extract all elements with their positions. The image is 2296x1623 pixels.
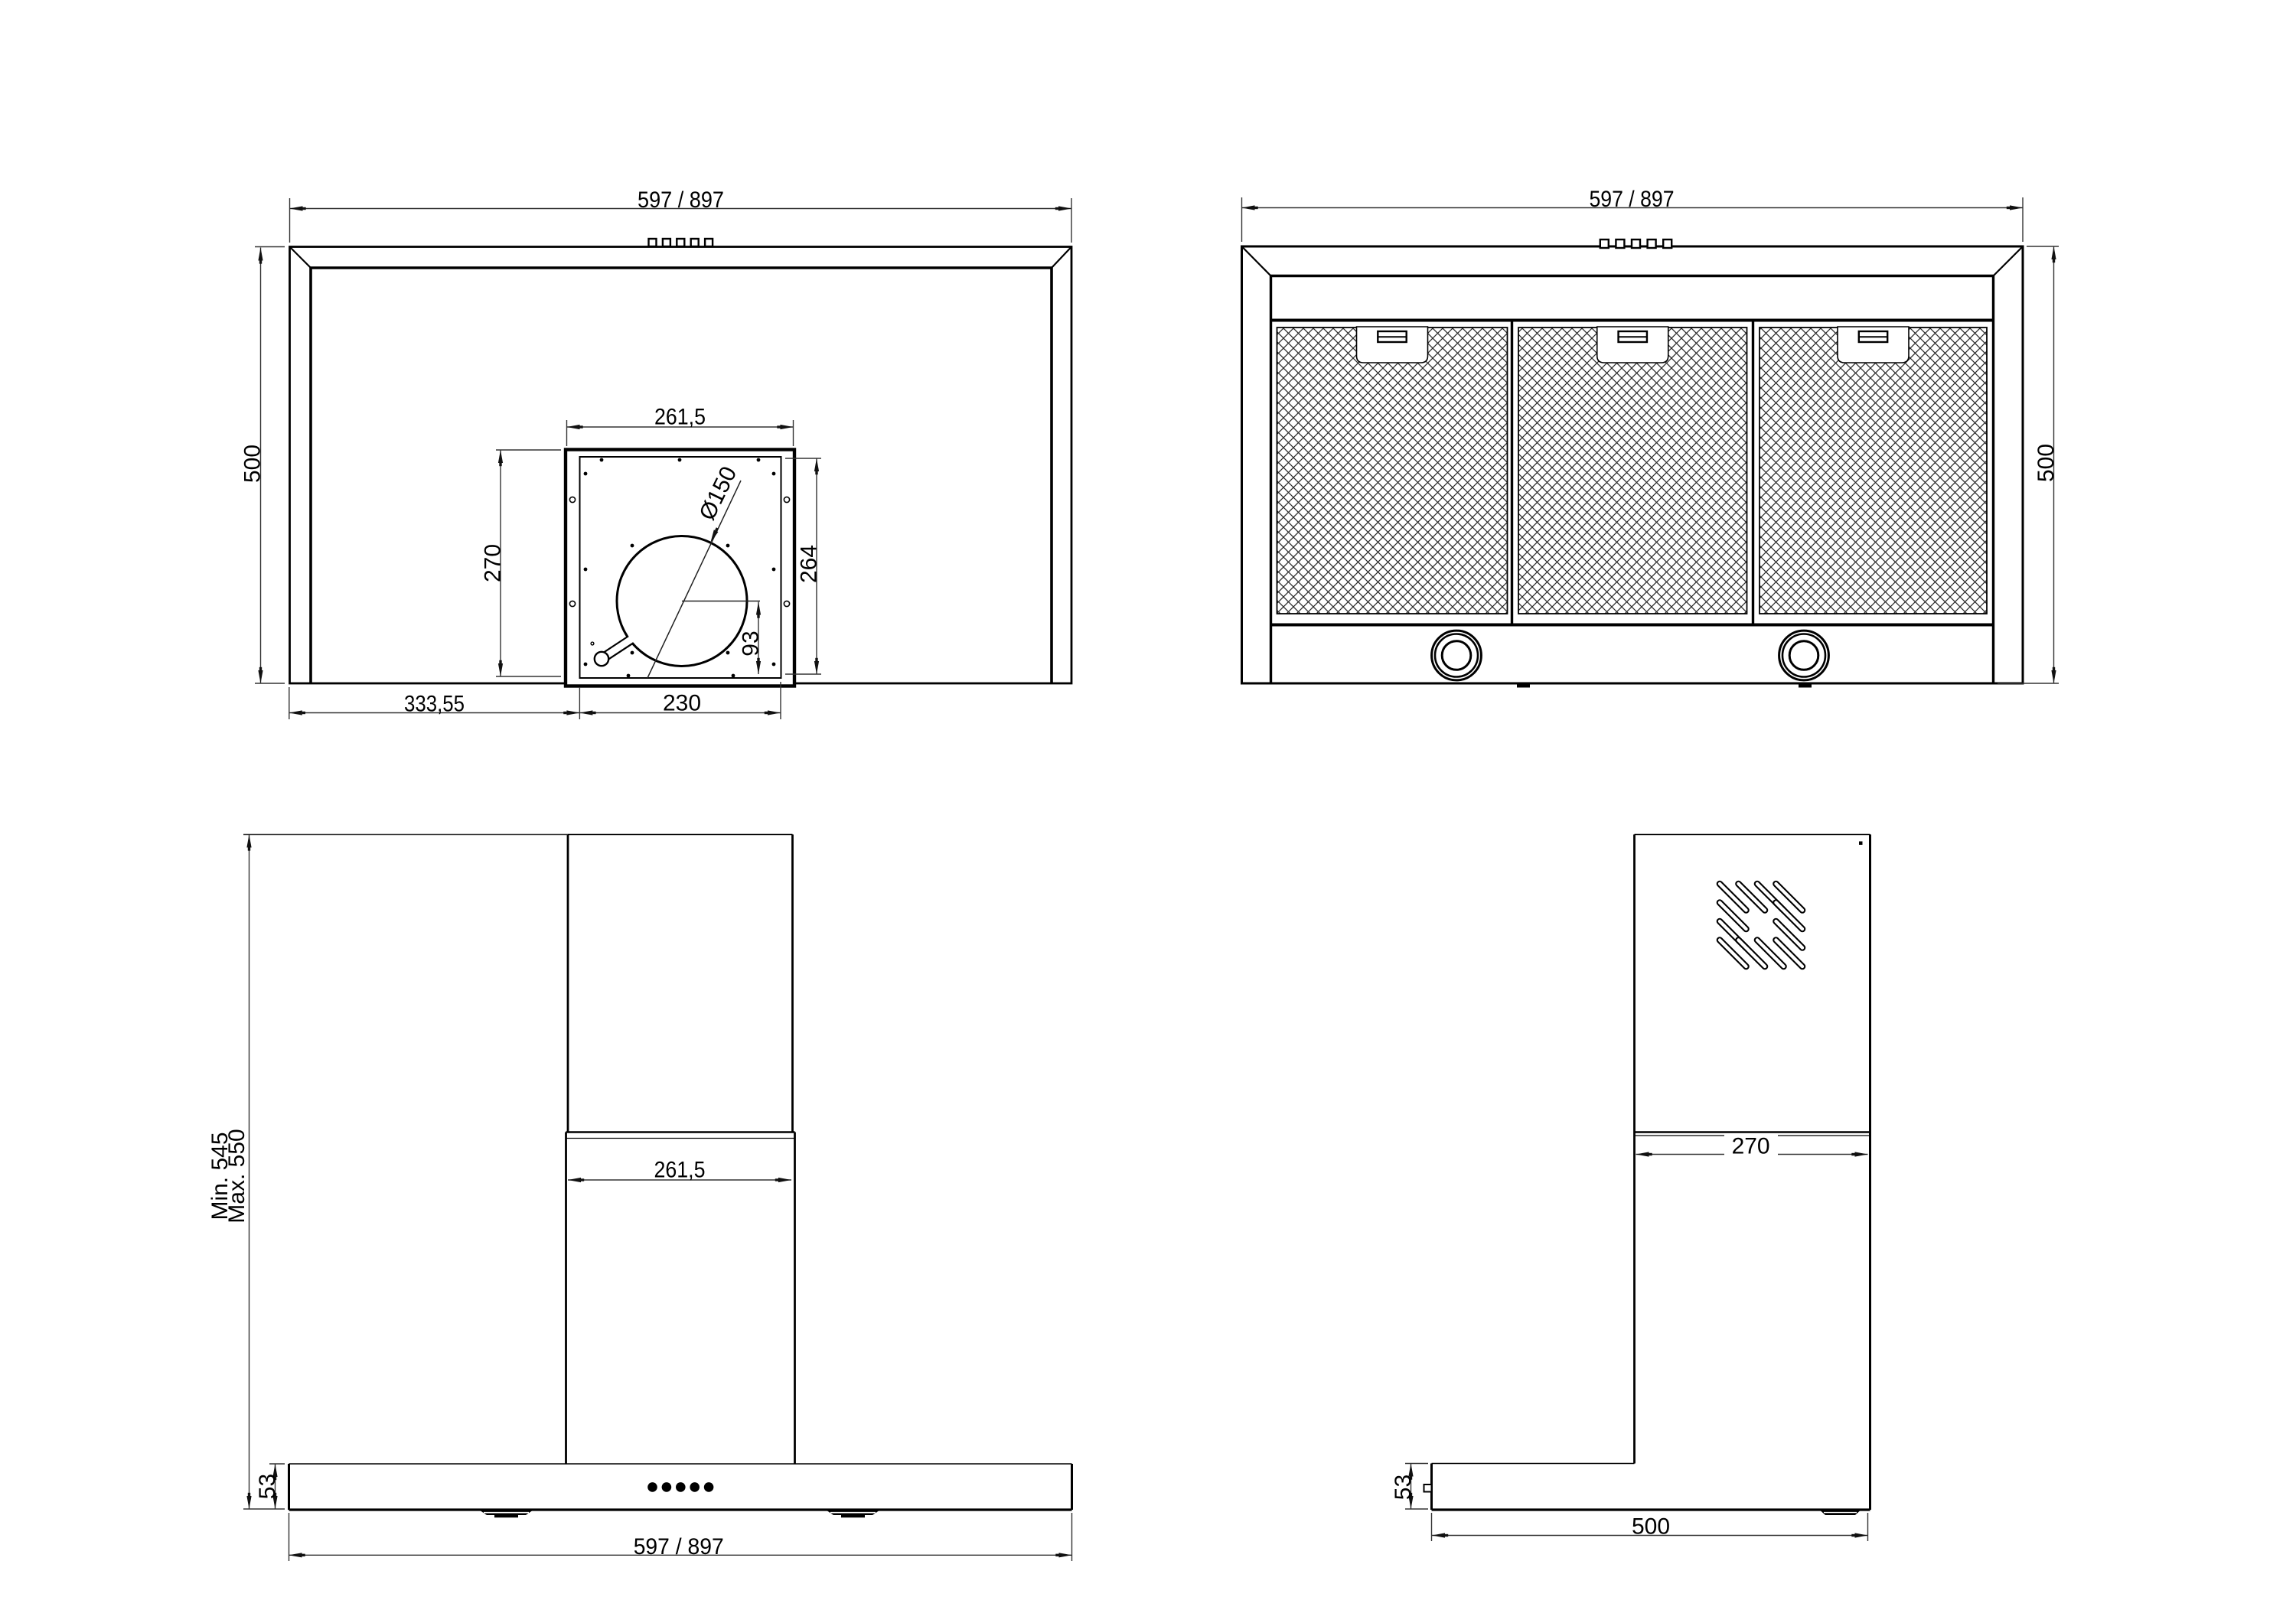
svg-text:500: 500	[1632, 1514, 1670, 1540]
svg-text:597 / 897: 597 / 897	[634, 1534, 724, 1559]
svg-text:597 / 897: 597 / 897	[638, 187, 724, 213]
svg-text:261,5: 261,5	[654, 405, 706, 430]
svg-text:333,55: 333,55	[404, 692, 465, 717]
svg-text:270: 270	[1732, 1134, 1770, 1159]
svg-text:270: 270	[481, 544, 506, 582]
svg-text:500: 500	[240, 445, 266, 483]
svg-text:500: 500	[2033, 444, 2059, 482]
svg-text:261,5: 261,5	[654, 1158, 706, 1183]
svg-text:Max. 550: Max. 550	[224, 1129, 249, 1223]
svg-text:264: 264	[797, 545, 822, 583]
svg-text:53: 53	[1391, 1475, 1416, 1500]
svg-text:93: 93	[739, 631, 764, 656]
svg-text:53: 53	[255, 1474, 280, 1499]
svg-text:230: 230	[663, 691, 701, 716]
svg-text:597 / 897: 597 / 897	[1590, 187, 1675, 212]
